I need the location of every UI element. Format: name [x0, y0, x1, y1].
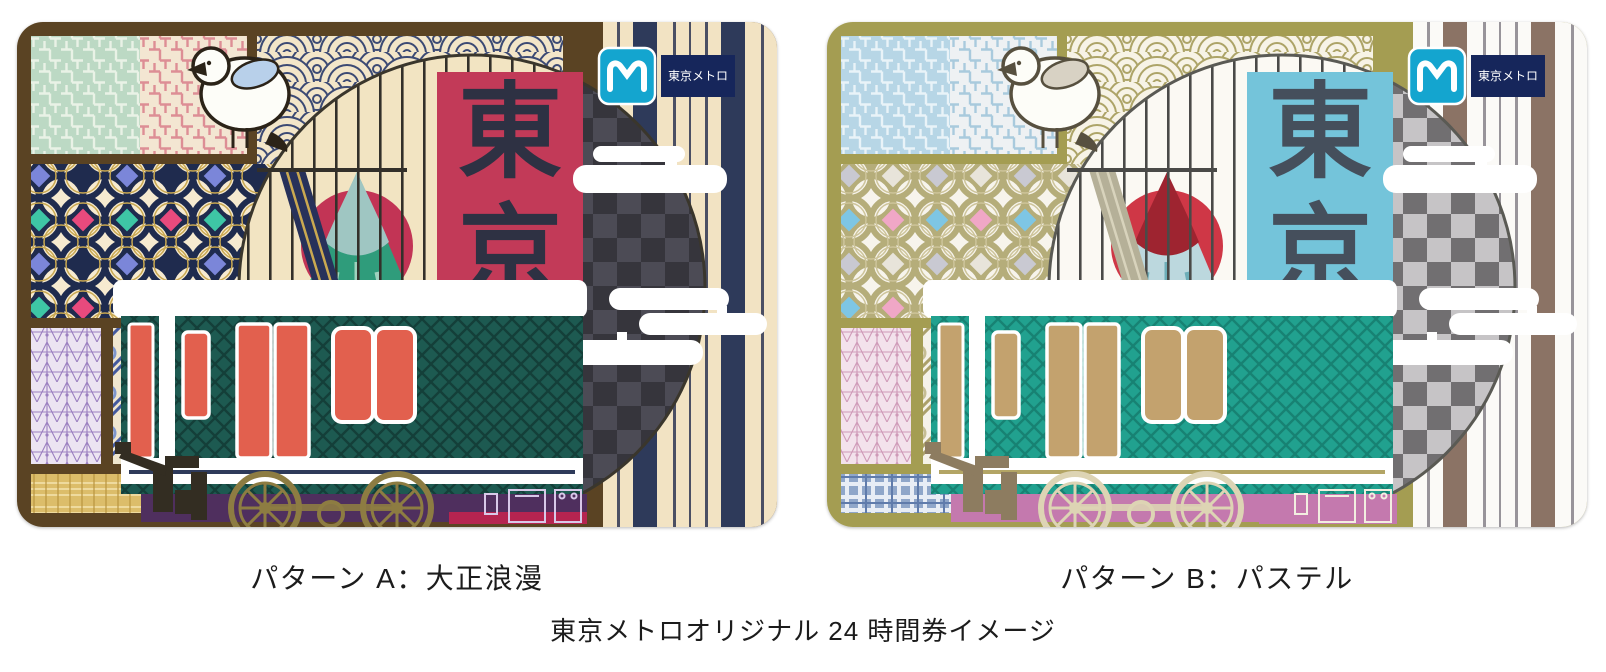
- train-window-small: [993, 332, 1019, 418]
- asanoha-panel: [31, 328, 101, 464]
- train-window-left: [1143, 328, 1183, 422]
- bird-eye: [207, 61, 211, 65]
- train: [113, 280, 587, 527]
- ticket-card-pattern-b: 東 京: [827, 22, 1587, 527]
- page: 東 京: [0, 0, 1606, 672]
- cards-row: 東 京: [0, 0, 1606, 597]
- metro-wordmark-text: 東京メトロ: [668, 69, 728, 83]
- caption-pattern-b: パターン B：パステル: [1060, 557, 1354, 597]
- train-window-left: [333, 328, 373, 422]
- caption-pattern-a: パターン A：大正浪漫: [250, 557, 544, 597]
- train-door-right: [275, 324, 309, 458]
- train-roof: [113, 280, 587, 318]
- ticket-card-pattern-a: 東 京: [17, 22, 777, 527]
- tokyo-kanji-1: 東: [458, 75, 562, 191]
- asanoha-panel: [841, 328, 911, 464]
- train-door-left: [1047, 324, 1081, 458]
- pattern-a-figure: 東 京: [17, 22, 777, 597]
- tokyo-metro-logo: 東京メトロ: [1409, 48, 1545, 104]
- tokyo-kanji-1: 東: [1268, 75, 1372, 191]
- bird-eye: [1017, 61, 1021, 65]
- train-window-right: [1185, 328, 1225, 422]
- train-roof: [923, 280, 1397, 318]
- tokyo-metro-logo: 東京メトロ: [599, 48, 735, 104]
- train: [923, 280, 1397, 527]
- ticket-card-a-art: 東 京: [17, 22, 777, 527]
- train-door-left: [237, 324, 271, 458]
- pattern-b-figure: 東 京: [827, 22, 1587, 597]
- image-caption: 東京メトロオリジナル 24 時間券イメージ: [0, 611, 1606, 648]
- train-window-right: [375, 328, 415, 422]
- train-door-right: [1085, 324, 1119, 458]
- train-window-small: [183, 332, 209, 418]
- ticket-card-b-art: 東 京: [827, 22, 1587, 527]
- metro-wordmark-text: 東京メトロ: [1478, 69, 1538, 83]
